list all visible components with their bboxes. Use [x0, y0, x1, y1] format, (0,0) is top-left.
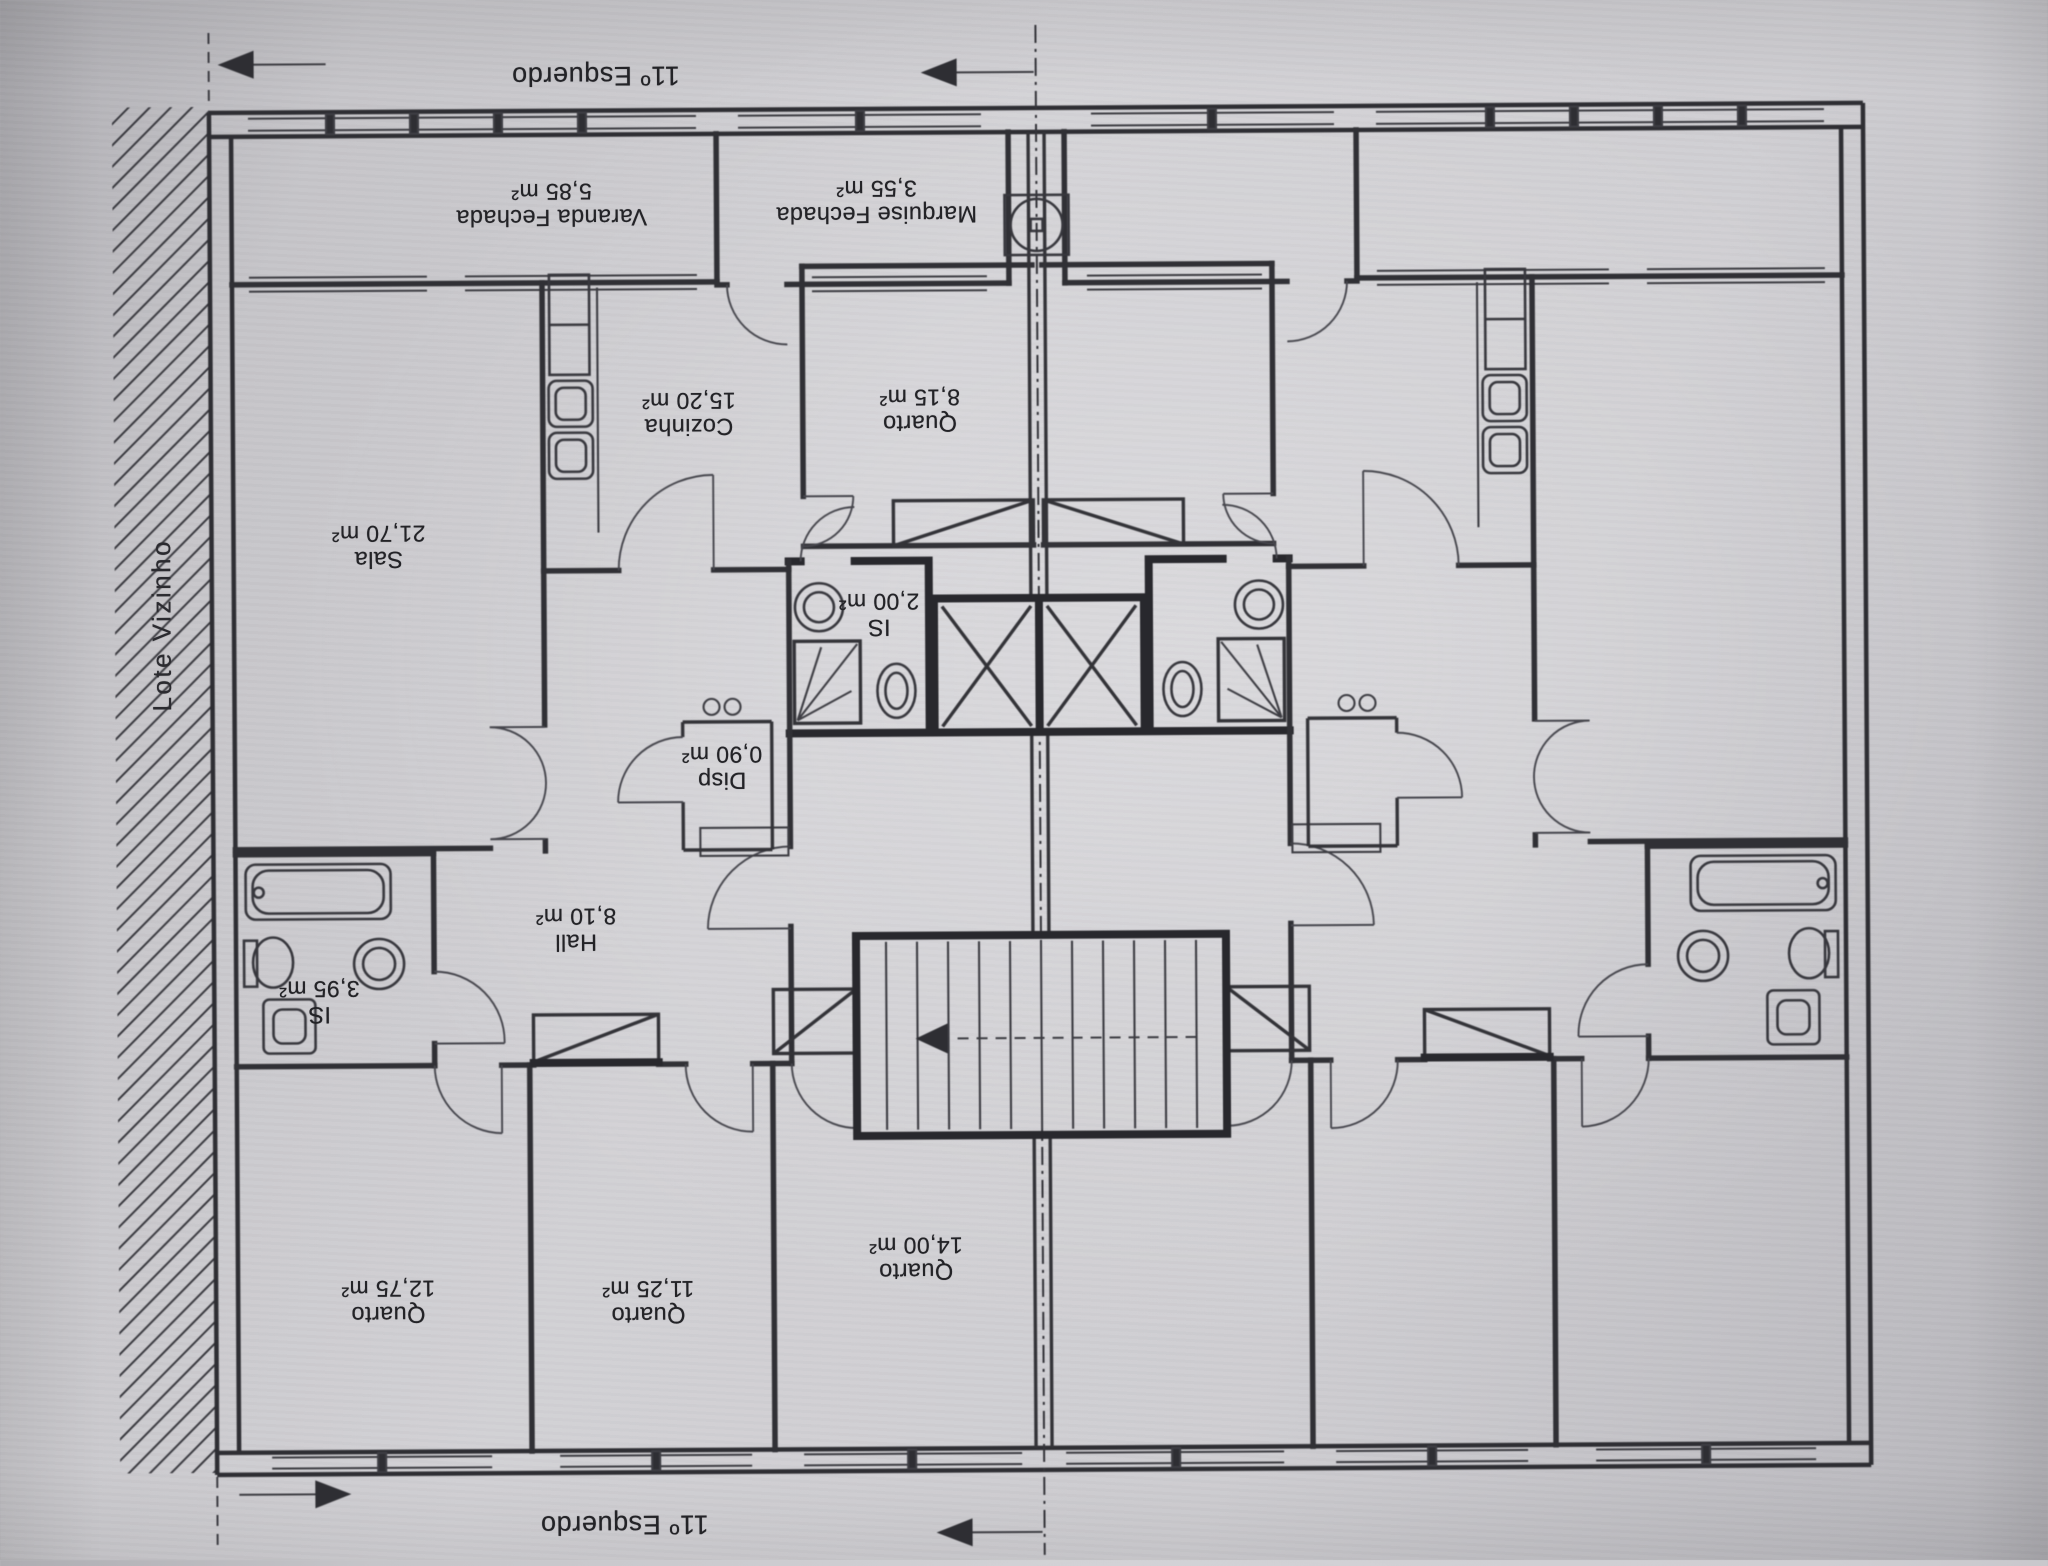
floor-plan: 11º Esquerdo 11º Esquerdo Lote Vizinho V… [0, 0, 2048, 1566]
wardrobe [893, 500, 1033, 546]
floor-label-top: 11º Esquerdo [512, 60, 680, 92]
staircase [856, 934, 1227, 1136]
room-label-is-200: IS 2,00 m² [838, 589, 919, 641]
wardrobe [773, 989, 856, 1054]
floor-plan-linework [0, 0, 2048, 1566]
room-label-quarto-1275: Quarto 12,75 m² [341, 1276, 435, 1329]
room-label-varanda: Varanda Fechada 5,85 m² [456, 178, 647, 231]
scanned-floor-plan: { "labels": { "top_floor": "11º Esquerdo… [0, 0, 2048, 1560]
room-label-is-395: IS 3,95 m² [279, 976, 360, 1028]
room-label-quarto-1400: Quarto 14,00 m² [869, 1232, 963, 1285]
neighbor-lot-hatching [111, 33, 217, 1554]
apartment-unit-mirrored [1041, 105, 1849, 1468]
room-label-disp: Disp 0,90 m² [681, 742, 762, 794]
kitchen-counter [548, 275, 599, 533]
wardrobe [533, 1014, 658, 1063]
room-label-cozinha: Cozinha 15,20 m² [642, 388, 736, 441]
neighbor-lot-label: Lote Vizinho [146, 539, 178, 712]
room-label-marquise: Marquise Fechada 3,55 m² [776, 175, 977, 228]
stair-direction-arrow [915, 1023, 947, 1053]
room-label-hall: Hall 8,10 m² [535, 903, 616, 955]
room-label-quarto-815: Quarto 8,15 m² [879, 384, 960, 436]
bathroom-main [235, 853, 504, 1067]
elevator-shafts [934, 597, 1145, 732]
room-label-sala: Sala 21,70 m² [331, 521, 425, 574]
room-label-quarto-1125: Quarto 11,25 m² [602, 1276, 695, 1329]
floor-label-bottom: 11º Esquerdo [540, 1508, 708, 1540]
building-core [850, 24, 1229, 1556]
sala-double-door [490, 727, 547, 839]
